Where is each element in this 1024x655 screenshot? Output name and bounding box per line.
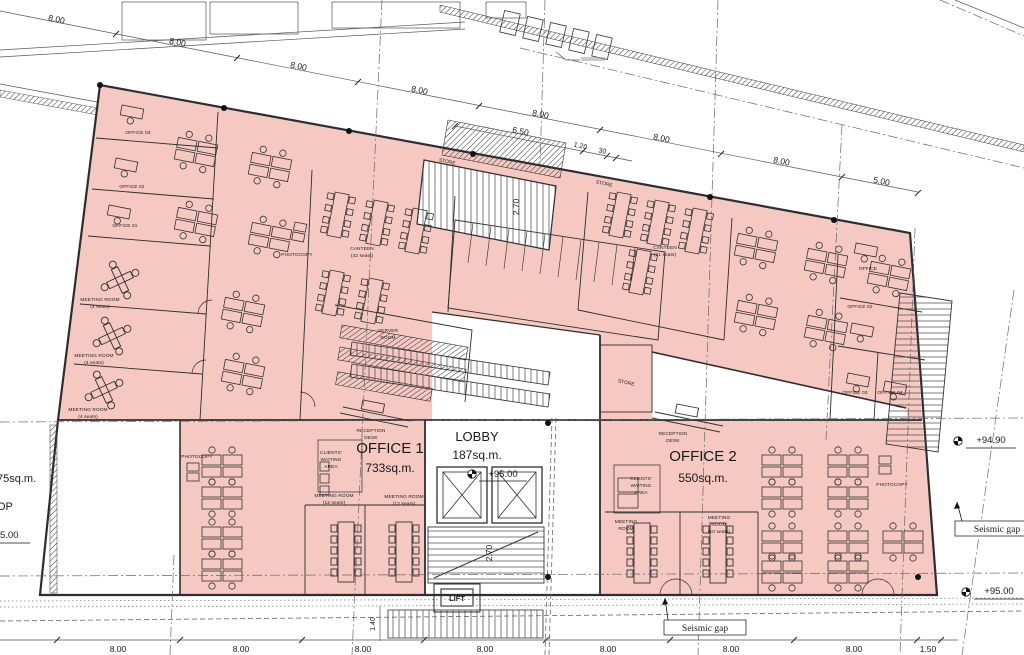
dim-bottom-6: 8.00 (723, 644, 740, 654)
dim-top-1: 8.00 (47, 13, 65, 26)
label-office-r4: OFFICE 04 (877, 390, 902, 396)
label-meeting4a-seats: (4 seats) (90, 304, 110, 310)
label-meeting12b-seats: (12 seats) (393, 501, 416, 507)
level-lobby: +95.00 (488, 469, 517, 480)
dim-steps-140: 1.40 (370, 617, 377, 631)
dim-stair-270: 2.70 (511, 198, 521, 215)
label-reception2-l2: DESK (666, 438, 680, 444)
dim-bottom-3: 8.00 (355, 644, 372, 654)
seismic-gap-bottom-label: Seismic gap (682, 624, 728, 634)
label-canteen42: CANTEEN (350, 246, 374, 252)
label-office03-left: OFFICE 03 (125, 130, 150, 136)
exterior-steps-bottom (388, 610, 543, 638)
label-clients2-l1: CLIENTS' (630, 476, 652, 482)
label-meeting2b-l2: ROOM (711, 522, 726, 528)
label-canteen21: CANTEEN (653, 245, 677, 251)
label-reception2-l1: RECEPTION (659, 431, 688, 437)
dim-bottom-1: 8.00 (110, 644, 127, 654)
label-meeting4b: MEETING ROOM (74, 353, 113, 359)
label-office2: OFFICE 2 (669, 448, 737, 465)
label-meeting2b-l1: MEETING (708, 515, 731, 521)
label-server-1: SERVER (378, 328, 399, 334)
seismic-gap-bottom: Seismic gap (662, 598, 746, 635)
label-office02-left: OFFICE 02 (119, 184, 144, 190)
label-photocopy-office1: PHOTOCOPY (181, 454, 213, 460)
dim-bottom-7: 8.00 (846, 644, 863, 654)
label-clients1-l3: AREA (324, 464, 338, 470)
label-office-r3: OFFICE 03 (842, 390, 867, 396)
dim-bottom-4: 8.00 (477, 644, 494, 654)
dim-top-4: 8.00 (410, 84, 428, 97)
dim-top-3: 8.00 (289, 60, 307, 73)
label-photocopy-office2: PHOTOCOPY (876, 482, 908, 488)
label-office-r2: OFFICE 02 (847, 304, 872, 310)
label-meeting2a-l1: MEETING (615, 519, 638, 525)
label-canteen42-seats: (42 seats) (351, 253, 374, 259)
lift-label: LIFT (449, 594, 465, 603)
label-clients1-l2: WAITING (320, 457, 341, 463)
label-lobby: LOBBY (455, 429, 499, 444)
label-office-r1: OFFICE (859, 266, 877, 272)
label-meeting2b-seats: (10 seats) (708, 529, 731, 535)
label-reception1-l1: RECEPTION (357, 428, 386, 434)
label-left-level: 5.00 (0, 530, 19, 541)
dim-top-6: 8.00 (652, 132, 670, 145)
annotation-leader (556, 52, 580, 60)
label-office1: OFFICE 1 (356, 440, 424, 457)
label-meeting4c: MEETING ROOM (68, 407, 107, 413)
label-server-2: ROOM (380, 335, 395, 341)
label-meeting4a: MEETING ROOM (80, 297, 119, 303)
label-meeting4c-seats: (4 seats) (78, 414, 98, 420)
label-meeting12a-seats: (12 seats) (323, 500, 346, 506)
seismic-gap-right: Seismic gap (954, 502, 1024, 536)
label-clients2-l3: AREA (634, 490, 648, 496)
tiny-annotation (581, 57, 605, 61)
label-office2-area: 550sq.m. (678, 471, 727, 485)
dim-top-8: 5.00 (872, 175, 890, 188)
dim-bottom-2: 8.00 (233, 644, 250, 654)
floor-plan-canvas: LIFT (0, 0, 1024, 655)
label-meeting4b-seats: (4 seats) (84, 360, 104, 366)
dim-bottom-5: 8.00 (600, 644, 617, 654)
label-clients2-l2: WAITING (630, 483, 651, 489)
dim-top-7: 8.00 (772, 155, 790, 168)
dim-lobbystair-270: 2.70 (484, 544, 494, 561)
label-left-name: OP (0, 501, 13, 513)
label-clients1-l1: CLIENTS' (320, 450, 342, 456)
label-canteen21-seats: (21 seats) (654, 252, 677, 258)
seismic-gap-right-label: Seismic gap (974, 525, 1020, 535)
label-photocopy-mid: PHOTOCOPY (281, 252, 313, 258)
label-office1-area: 733sq.m. (365, 461, 414, 475)
label-left-area: 75sq.m. (0, 473, 36, 485)
level-right-lower: +95.00 (984, 586, 1013, 597)
dim-top-5: 8.00 (531, 108, 549, 121)
label-office01-left: OFFICE 01 (112, 223, 137, 229)
label-lobby-area: 187sq.m. (452, 448, 501, 462)
party-wall-hatch (50, 425, 57, 593)
dim-bottom-150: 1.50 (920, 644, 937, 654)
label-meeting12a: MEETING ROOM (314, 493, 353, 499)
label-meeting12b: MEETING ROOM (384, 494, 423, 500)
label-meeting2a-l2: ROOM (618, 526, 633, 532)
level-right-upper: +94.90 (976, 435, 1005, 446)
